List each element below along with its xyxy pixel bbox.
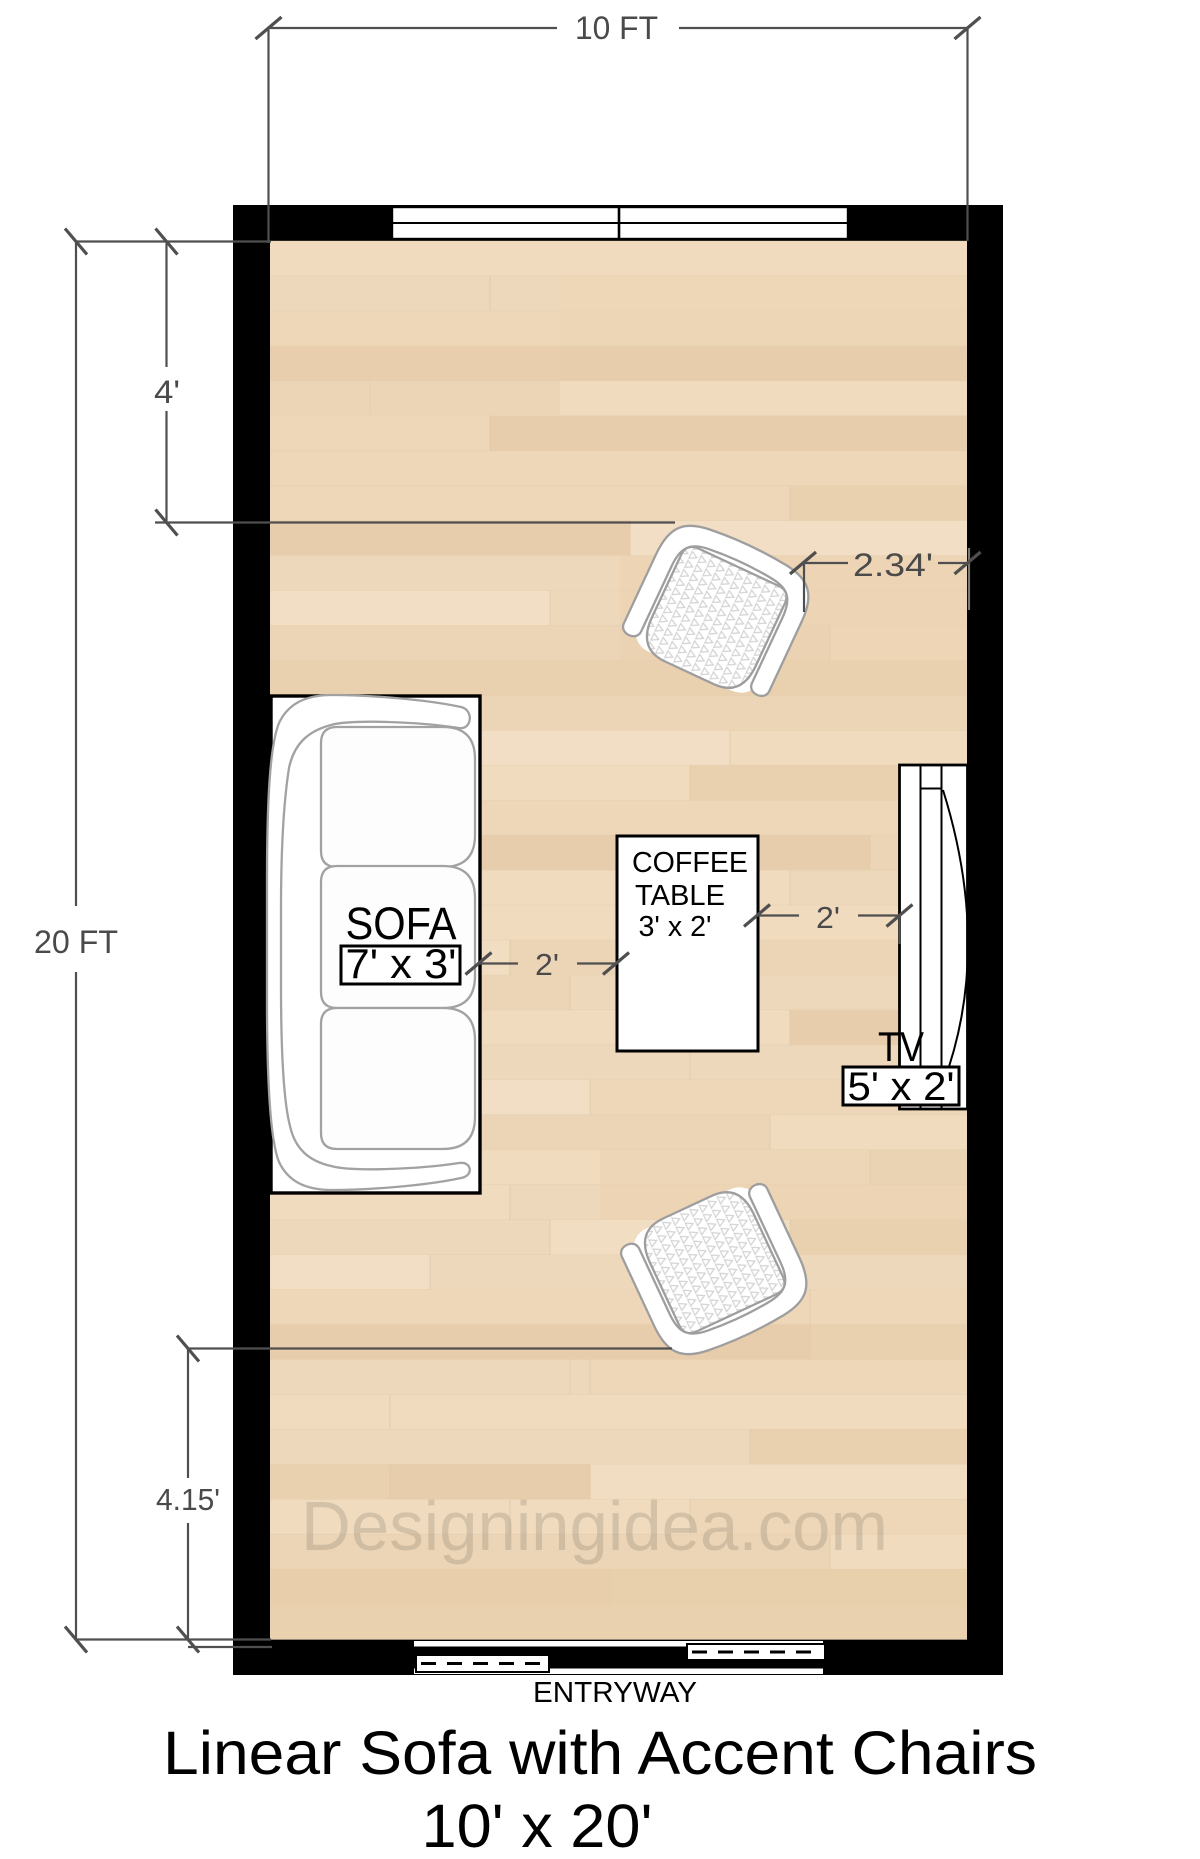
svg-text:4.15': 4.15': [156, 1482, 220, 1517]
svg-text:10 FT: 10 FT: [575, 10, 658, 46]
svg-text:COFFEE: COFFEE: [632, 847, 748, 879]
svg-text:10' x 20': 10' x 20': [422, 1792, 653, 1859]
svg-text:5' x 2': 5' x 2': [848, 1065, 955, 1109]
svg-text:7' x 3': 7' x 3': [346, 940, 457, 987]
svg-text:Designingidea.com: Designingidea.com: [301, 1487, 888, 1565]
svg-text:2': 2': [535, 947, 559, 982]
svg-text:4': 4': [154, 374, 180, 410]
svg-text:3' x 2': 3' x 2': [639, 911, 712, 943]
svg-text:ENTRYWAY: ENTRYWAY: [533, 1677, 697, 1709]
svg-text:Linear Sofa with Accent Chairs: Linear Sofa with Accent Chairs: [163, 1719, 1037, 1787]
svg-text:TABLE: TABLE: [635, 880, 725, 912]
svg-text:20 FT: 20 FT: [34, 924, 118, 960]
svg-text:2.34': 2.34': [853, 547, 933, 583]
svg-text:TV: TV: [878, 1023, 924, 1070]
svg-text:2': 2': [816, 900, 840, 935]
